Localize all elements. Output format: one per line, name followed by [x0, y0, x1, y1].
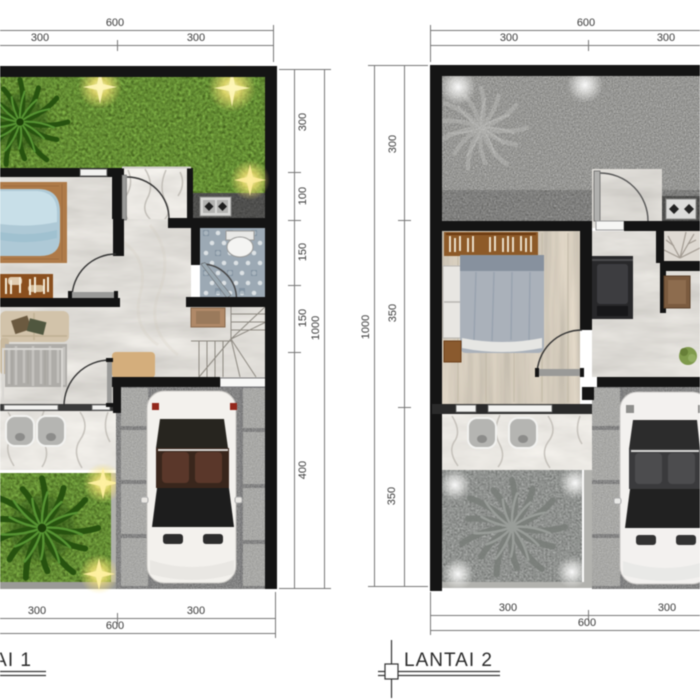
svg-text:600: 600 [106, 620, 124, 632]
svg-text:600: 600 [577, 17, 595, 29]
svg-text:LANTAI 1: LANTAI 1 [0, 650, 32, 671]
svg-text:300: 300 [387, 135, 399, 153]
svg-text:350: 350 [387, 304, 399, 322]
svg-text:100: 100 [297, 187, 309, 205]
svg-text:300: 300 [297, 113, 309, 131]
svg-text:300: 300 [28, 605, 46, 617]
svg-text:1000: 1000 [360, 315, 372, 339]
svg-text:300: 300 [31, 32, 49, 44]
svg-text:150: 150 [297, 243, 309, 261]
svg-text:300: 300 [658, 602, 676, 614]
svg-text:600: 600 [106, 17, 124, 29]
svg-text:300: 300 [500, 32, 518, 44]
svg-text:300: 300 [657, 32, 675, 44]
svg-text:350: 350 [386, 487, 398, 505]
svg-text:300: 300 [187, 32, 205, 44]
svg-text:1000: 1000 [310, 316, 322, 340]
svg-text:400: 400 [297, 461, 309, 479]
svg-text:300: 300 [499, 602, 517, 614]
svg-text:300: 300 [187, 605, 205, 617]
svg-text:150: 150 [297, 309, 309, 327]
svg-text:LANTAI 2: LANTAI 2 [404, 650, 493, 671]
svg-text:600: 600 [578, 617, 596, 629]
